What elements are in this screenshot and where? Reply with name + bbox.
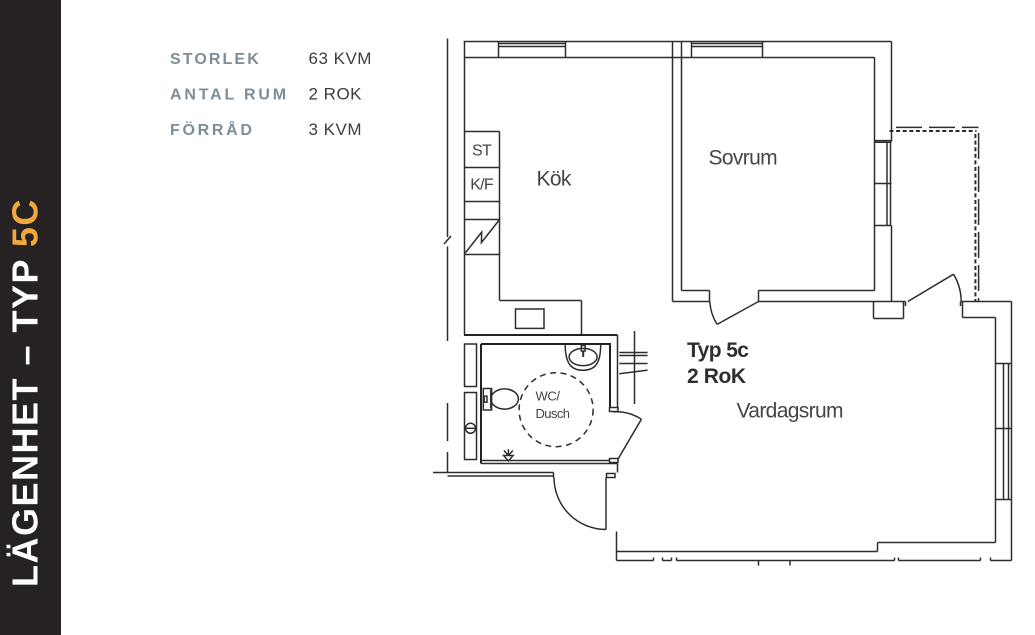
svg-text:2 ROK: 2 ROK	[309, 85, 363, 104]
svg-text:STORLEK: STORLEK	[170, 51, 261, 68]
svg-text:WC/: WC/	[536, 389, 561, 404]
svg-text:LÄGENHET – TYP 5C: LÄGENHET – TYP 5C	[5, 198, 46, 587]
svg-text:Kök: Kök	[537, 168, 572, 191]
svg-text:Typ 5c: Typ 5c	[687, 339, 749, 362]
svg-text:3 KVM: 3 KVM	[309, 120, 363, 139]
svg-text:ANTAL RUM: ANTAL RUM	[170, 87, 289, 104]
svg-text:63 KVM: 63 KVM	[309, 49, 372, 68]
svg-text:ST: ST	[472, 143, 492, 160]
svg-text:2 RoK: 2 RoK	[687, 365, 746, 388]
svg-text:K/F: K/F	[470, 177, 494, 194]
svg-text:FÖRRÅD: FÖRRÅD	[170, 120, 255, 139]
svg-text:Sovrum: Sovrum	[709, 146, 778, 169]
svg-text:Vardagsrum: Vardagsrum	[737, 399, 843, 422]
svg-text:Dusch: Dusch	[536, 406, 570, 421]
